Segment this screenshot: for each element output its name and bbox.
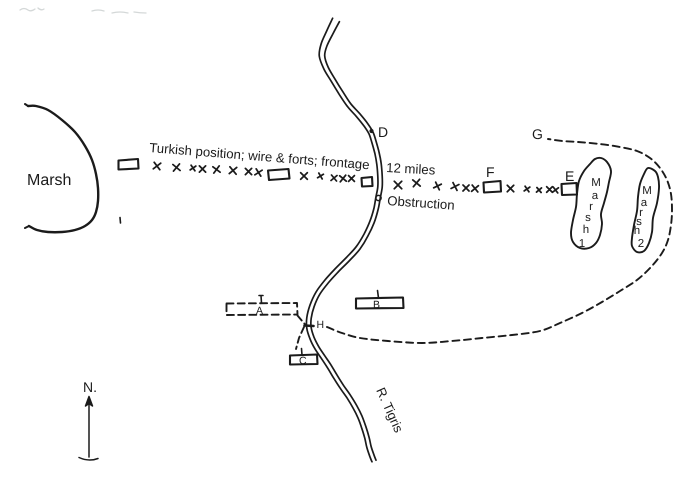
- svg-text:M: M: [642, 185, 652, 197]
- svg-text:C: C: [299, 355, 307, 367]
- svg-text:A: A: [256, 305, 263, 317]
- svg-text:12 miles: 12 miles: [386, 160, 436, 178]
- svg-text:Marsh: Marsh: [27, 172, 71, 189]
- svg-text:H: H: [317, 319, 325, 331]
- svg-text:1: 1: [579, 238, 585, 250]
- svg-text:D: D: [378, 124, 388, 140]
- svg-text:N.: N.: [83, 379, 97, 395]
- svg-text:G: G: [532, 126, 543, 142]
- svg-text:2: 2: [638, 238, 644, 250]
- svg-text:h: h: [634, 225, 640, 237]
- svg-text:M: M: [591, 177, 601, 189]
- svg-text:s: s: [585, 212, 591, 224]
- svg-text:B: B: [373, 299, 380, 311]
- svg-text:h: h: [583, 224, 589, 236]
- svg-text:E: E: [565, 168, 574, 184]
- svg-text:F: F: [486, 164, 495, 180]
